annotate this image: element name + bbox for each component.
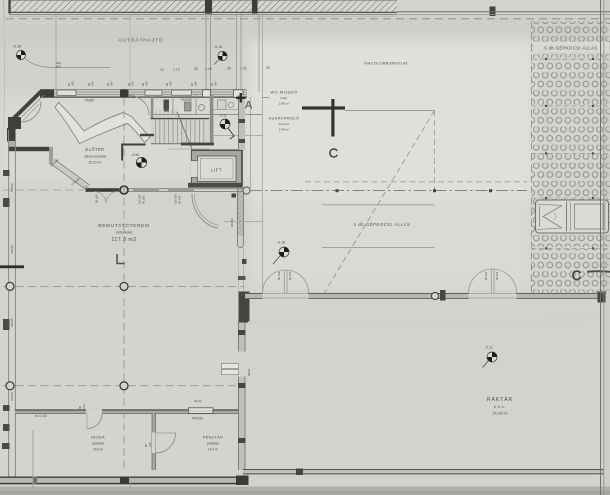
svg-text:IRODA: IRODA xyxy=(91,436,105,440)
svg-text:parketta: parketta xyxy=(207,442,219,446)
svg-text:mázas kerámia: mázas kerámia xyxy=(84,155,107,159)
svg-text:90: 90 xyxy=(87,83,91,86)
svg-text:35: 35 xyxy=(227,67,231,71)
svg-text:240: 240 xyxy=(169,81,173,86)
svg-text:180 300: 180 300 xyxy=(174,194,178,204)
svg-text:180 300: 180 300 xyxy=(138,194,142,204)
svg-text:90: 90 xyxy=(210,83,214,86)
svg-text:C: C xyxy=(572,268,582,283)
svg-text:kőburkolat: kőburkolat xyxy=(116,231,132,235)
svg-text:240: 240 xyxy=(131,81,135,86)
svg-text:10: 10 xyxy=(160,68,164,72)
svg-text:90 210: 90 210 xyxy=(288,271,292,280)
svg-text:90 210: 90 210 xyxy=(277,271,281,280)
svg-text:PM/40: PM/40 xyxy=(10,245,14,254)
svg-text:240: 240 xyxy=(91,81,95,86)
svg-text:90 190: 90 190 xyxy=(95,194,99,203)
svg-text:mettl.: mettl. xyxy=(280,96,288,100)
svg-text:90 210: 90 210 xyxy=(495,271,499,280)
svg-text:90/19: 90/19 xyxy=(247,368,251,376)
svg-text:-0.11: -0.11 xyxy=(219,114,227,118)
svg-text:240: 240 xyxy=(110,81,114,86)
svg-text:90: 90 xyxy=(141,83,145,86)
svg-text:35: 35 xyxy=(194,67,198,71)
svg-text:PÉNZTÁR: PÉNZTÁR xyxy=(203,435,224,440)
svg-text:210: 210 xyxy=(82,404,86,409)
svg-text:-0.16: -0.16 xyxy=(13,45,21,49)
svg-text:90: 90 xyxy=(127,83,131,86)
svg-text:240: 240 xyxy=(194,81,198,86)
svg-text:PM/46: PM/46 xyxy=(10,392,14,401)
svg-text:240: 240 xyxy=(145,81,149,86)
svg-text:24.9 m: 24.9 m xyxy=(93,448,103,452)
svg-text:KUKATÁROLÓ: KUKATÁROLÓ xyxy=(268,116,299,121)
svg-text:90/190: 90/190 xyxy=(230,218,234,227)
svg-text:-0.16: -0.16 xyxy=(214,45,222,49)
svg-text:ELŐTÉR: ELŐTÉR xyxy=(85,147,104,152)
svg-text:AUTÓÁTHAJTÓ: AUTÓÁTHAJTÓ xyxy=(118,37,163,44)
svg-text:h=2.40: h=2.40 xyxy=(35,414,47,418)
svg-text:90 210: 90 210 xyxy=(484,271,488,280)
svg-text:C: C xyxy=(329,146,338,161)
svg-text:1.40: 1.40 xyxy=(205,67,212,71)
svg-text:25,33 m²: 25,33 m² xyxy=(88,161,102,165)
svg-text:90 300: 90 300 xyxy=(142,195,146,204)
svg-text:VIACOLORBURKOLAT: VIACOLORBURKOLAT xyxy=(364,62,409,66)
svg-text:b.b.c.: b.b.c. xyxy=(494,405,506,409)
svg-text:4 db GÉPKOCSI ÁLLÁS: 4 db GÉPKOCSI ÁLLÁS xyxy=(354,222,411,227)
svg-text:90: 90 xyxy=(67,83,71,86)
svg-text:-0.16: -0.16 xyxy=(277,241,285,245)
svg-text:PM/60: PM/60 xyxy=(85,99,94,103)
svg-text:PM/150: PM/150 xyxy=(181,98,192,102)
svg-text:101.60 m²: 101.60 m² xyxy=(492,412,508,416)
svg-text:90: 90 xyxy=(165,83,169,86)
svg-text:WC-MOSDÓ: WC-MOSDÓ xyxy=(270,90,297,95)
svg-text:parketta: parketta xyxy=(92,442,104,446)
svg-text:90: 90 xyxy=(190,83,194,86)
svg-text:RAKTÁR: RAKTÁR xyxy=(487,396,513,403)
svg-text:2.94 m²: 2.94 m² xyxy=(279,128,290,132)
svg-text:90: 90 xyxy=(106,83,110,86)
svg-text:210: 210 xyxy=(148,442,152,447)
svg-text:1.13: 1.13 xyxy=(173,68,180,72)
svg-text:982: 982 xyxy=(56,64,61,68)
svg-text:240: 240 xyxy=(71,81,75,86)
svg-text:sim.bet.: sim.bet. xyxy=(279,122,290,126)
svg-text:LIFT: LIFT xyxy=(211,168,222,173)
svg-text:PM/100: PM/100 xyxy=(192,417,203,421)
svg-text:1.42: 1.42 xyxy=(240,67,247,71)
svg-text:92 92: 92 92 xyxy=(194,399,202,403)
svg-text:6 db GÉPKOCSI ÁLLÁS: 6 db GÉPKOCSI ÁLLÁS xyxy=(544,46,597,51)
svg-text:A: A xyxy=(245,100,253,112)
svg-text:240: 240 xyxy=(214,81,218,86)
svg-text:-0.90: -0.90 xyxy=(131,153,139,157)
svg-text:PM/30: PM/30 xyxy=(10,318,14,327)
svg-text:PM/30: PM/30 xyxy=(10,183,14,192)
svg-text:2.89 m²: 2.89 m² xyxy=(279,102,290,106)
svg-text:-0.11: -0.11 xyxy=(485,346,493,350)
svg-text:14.3 m: 14.3 m xyxy=(208,448,218,452)
svg-text:90 300: 90 300 xyxy=(178,195,182,204)
svg-text:20: 20 xyxy=(266,66,270,70)
